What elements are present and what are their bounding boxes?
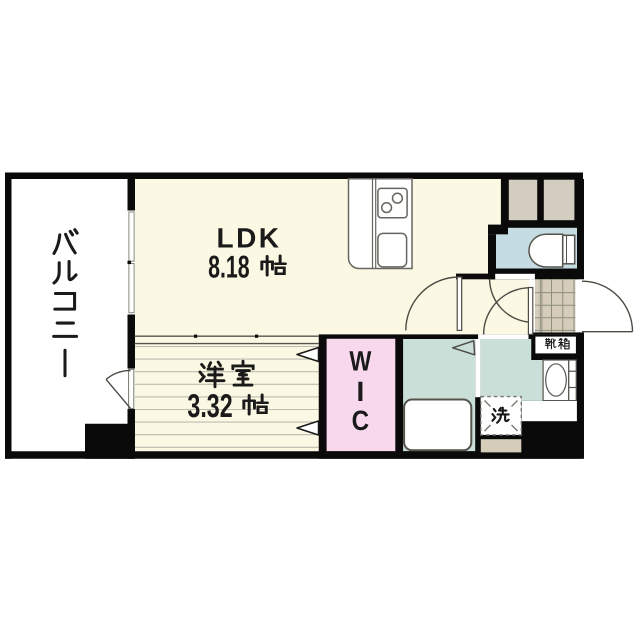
svg-text:W: W [349, 346, 371, 377]
svg-text:I: I [357, 376, 365, 407]
svg-text:C: C [352, 405, 370, 436]
svg-text:8.18: 8.18 [208, 249, 250, 285]
svg-text:3.32: 3.32 [187, 387, 232, 424]
